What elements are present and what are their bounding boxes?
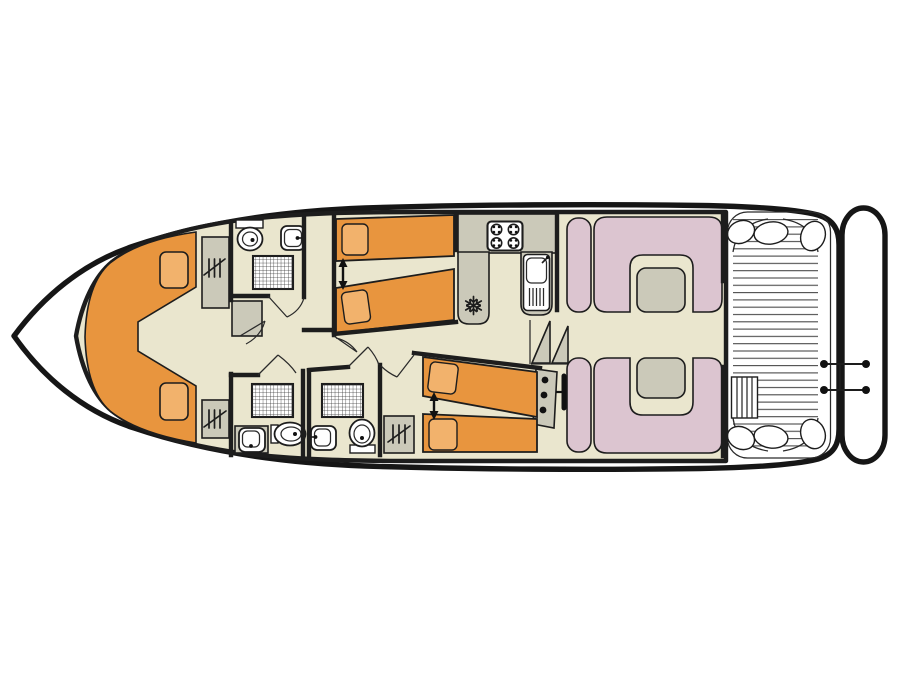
bed-pillow [429,419,457,450]
helm-instrument [542,377,549,384]
galley-tap-icon [546,256,549,259]
swim-platform [842,208,885,462]
boat-deck-plan [0,0,900,675]
shower-grid-icon [253,256,293,289]
interior-wall [309,367,348,370]
stern-rail-post [820,386,828,394]
bow-cushion [160,252,188,288]
stern-rail-post [862,386,870,394]
washbasin-tap-icon [249,444,253,448]
toilet-drain [360,436,364,440]
saloon-bench [567,358,591,452]
washbasin-tap-icon [314,435,318,439]
dinette-table [637,268,685,312]
helm-instrument [540,407,547,414]
toilet-drain [251,238,255,242]
saloon-bench [567,218,591,312]
stern-rail-post [820,360,828,368]
toilet [238,228,263,251]
bed-pillow [341,289,371,324]
washbasin-tap-icon [296,236,300,240]
shower-grid-icon [322,384,363,417]
bed-pillow [342,224,368,255]
bow-cushion [160,383,188,420]
helm-instrument [541,392,548,399]
shower-grid-icon [252,384,293,417]
storage-cabinet [232,301,262,336]
dinette-table [637,358,685,398]
helm-wheel [562,374,567,411]
toilet-drain [293,432,297,436]
deck-plan-canvas [0,0,900,675]
bed-pillow [427,361,458,394]
stern-rail-post [862,360,870,368]
deck-ladder [732,377,758,418]
